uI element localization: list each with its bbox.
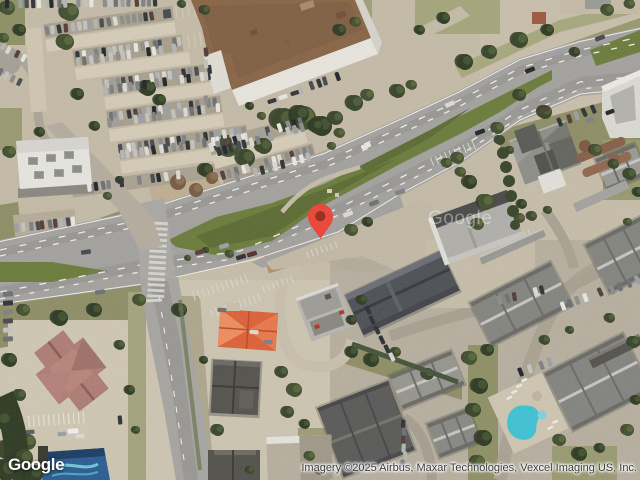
svg-text:Google: Google <box>428 208 492 229</box>
